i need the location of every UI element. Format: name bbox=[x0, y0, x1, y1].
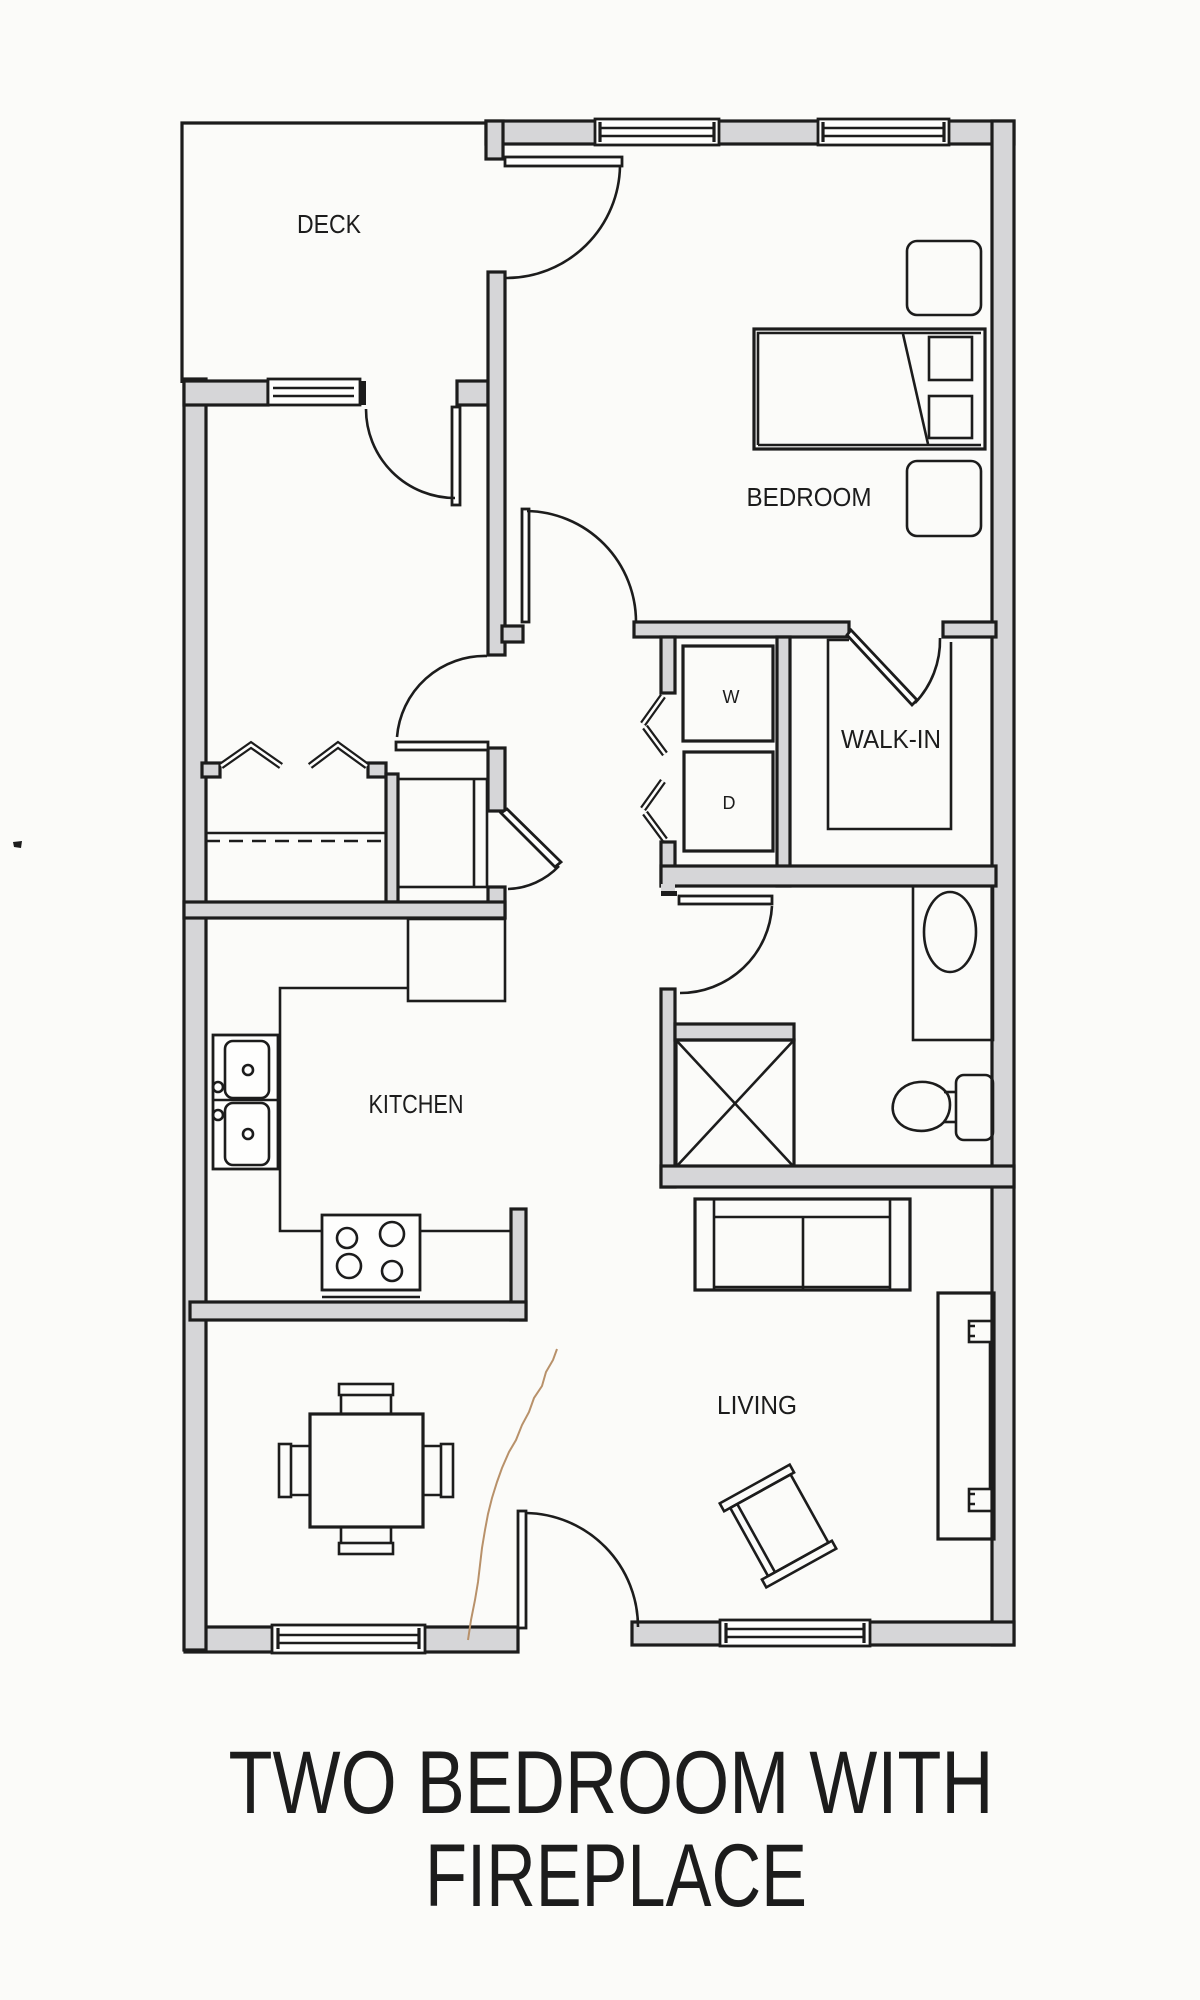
svg-text:W: W bbox=[723, 687, 740, 707]
svg-text:D: D bbox=[723, 793, 736, 813]
svg-text:BEDROOM: BEDROOM bbox=[747, 482, 872, 512]
svg-text:KITCHEN: KITCHEN bbox=[369, 1089, 464, 1119]
svg-text:LIVING: LIVING bbox=[717, 1390, 797, 1420]
svg-text:TWO BEDROOM WITH: TWO BEDROOM WITH bbox=[229, 1732, 994, 1832]
svg-text:FIREPLACE: FIREPLACE bbox=[425, 1825, 807, 1925]
svg-text:WALK-IN: WALK-IN bbox=[841, 724, 941, 754]
svg-text:DECK: DECK bbox=[297, 209, 362, 239]
